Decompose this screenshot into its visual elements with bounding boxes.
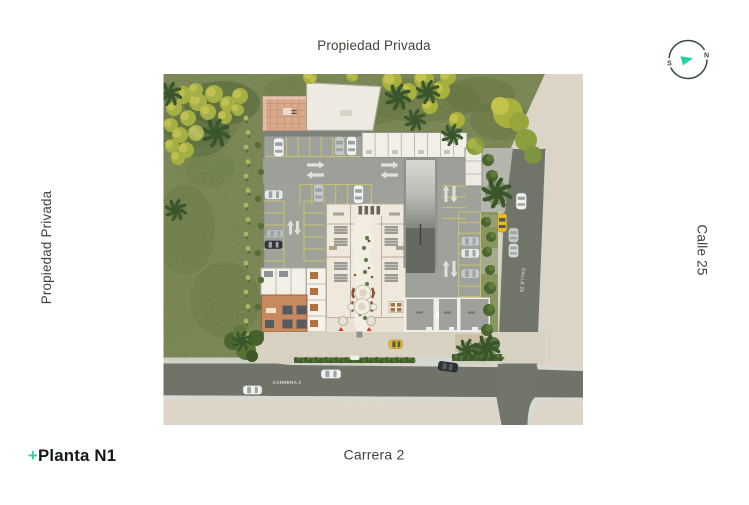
svg-text:Propiedad Privada: Propiedad Privada <box>39 190 54 304</box>
svg-text:Calle 25: Calle 25 <box>695 224 710 275</box>
svg-text:CARRERA 2: CARRERA 2 <box>273 380 302 385</box>
svg-text:N: N <box>704 53 709 60</box>
svg-text:S: S <box>667 61 672 68</box>
svg-text:Propiedad Privada: Propiedad Privada <box>317 38 431 53</box>
svg-text:+Planta N1: +Planta N1 <box>28 446 116 465</box>
svg-text:Carrera 2: Carrera 2 <box>344 447 405 463</box>
